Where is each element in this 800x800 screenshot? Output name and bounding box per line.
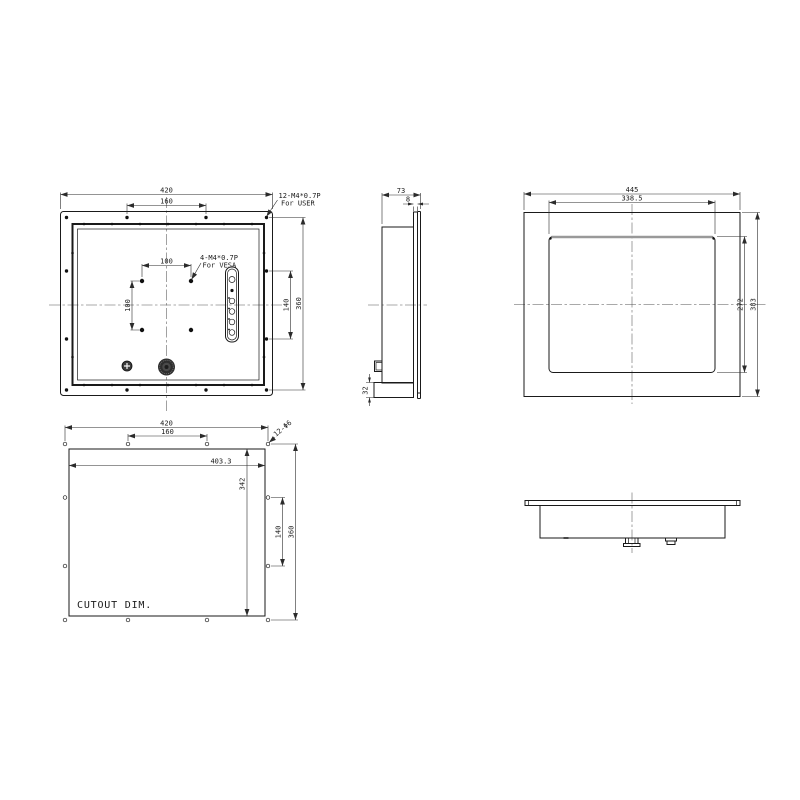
- osd-led: [230, 289, 233, 292]
- rear-dim-overall-height: 360: [295, 297, 303, 310]
- osd-buttons: [228, 297, 235, 335]
- cutout-dim-height: 342: [239, 478, 247, 491]
- rear-dim-vesa-height: 100: [124, 299, 132, 312]
- side-dim-bottom-section: 32: [362, 386, 370, 394]
- display-corner-mark-left: [549, 237, 551, 239]
- front-dim-display-height: 272: [737, 298, 745, 311]
- side-bottom-box: [374, 383, 414, 398]
- front-dim-overall-height: 383: [750, 298, 758, 311]
- cutout-view: 420 160 403.3 342 140 360 12-Φ6 CUTOUT D…: [63, 419, 298, 622]
- front-dim-overall-width: 445: [626, 186, 639, 194]
- cutout-dim-hole-span-w: 420: [160, 420, 173, 428]
- rear-label-vesa-for: For VESA: [203, 262, 238, 270]
- front-view: 445 338.5 272 383: [514, 186, 766, 404]
- cutout-rectangle: [69, 449, 265, 616]
- osd-power-button: [229, 277, 235, 283]
- side-bezel-step: [414, 212, 418, 227]
- bottom-connector-right: [666, 538, 677, 545]
- cutout-caption: CUTOUT DIM.: [77, 600, 152, 611]
- rear-dimensions: 420 160 100 100 140 360 12-M4*0.7P For U…: [61, 187, 321, 391]
- rear-dim-overall-width: 420: [160, 187, 173, 195]
- cutout-dim-hole-spacing-v: 140: [275, 526, 283, 539]
- display-corner-mark-right: [712, 237, 714, 239]
- rear-dim-hole-spacing-h: 160: [160, 198, 173, 206]
- side-dimensions: 73 8 32: [362, 187, 430, 406]
- drawing-sheet: 420 160 100 100 140 360 12-M4*0.7P For U…: [0, 0, 800, 800]
- dc-jack-connector: [122, 361, 132, 371]
- drawing-canvas: 420 160 100 100 140 360 12-M4*0.7P For U…: [0, 0, 800, 800]
- rear-dim-hole-spacing-v: 140: [283, 299, 291, 312]
- front-dimensions: 445 338.5 272 383: [524, 186, 760, 397]
- cutout-dim-width: 403.3: [210, 458, 231, 466]
- osd-button-strip: [226, 267, 239, 342]
- front-centerlines: [514, 204, 766, 404]
- power-connector: [158, 359, 175, 376]
- cutout-dim-hole-spacing-h: 160: [161, 428, 174, 436]
- bottom-flange-bar: [525, 501, 740, 506]
- rear-back-cover-inner: [78, 229, 260, 380]
- rear-view: 420 160 100 100 140 360 12-M4*0.7P For U…: [49, 187, 321, 412]
- side-dim-total-depth: 73: [397, 187, 405, 195]
- rear-dim-vesa-width: 100: [160, 258, 173, 266]
- cutout-drill-holes: [63, 442, 270, 622]
- side-dim-front-frame: 8: [406, 196, 410, 204]
- cutout-dim-hole-span-h: 360: [288, 526, 296, 539]
- side-connector-nub: [375, 361, 383, 372]
- bottom-flange-end-ticks: [529, 501, 737, 506]
- bottom-view: [525, 493, 740, 554]
- front-dim-display-width: 338.5: [621, 195, 642, 203]
- rear-label-user-for: For USER: [281, 200, 316, 208]
- cutout-label-holes: 12-Φ6: [272, 419, 293, 439]
- bottom-body-outline: [540, 506, 725, 539]
- side-view: 73 8 32: [362, 187, 430, 406]
